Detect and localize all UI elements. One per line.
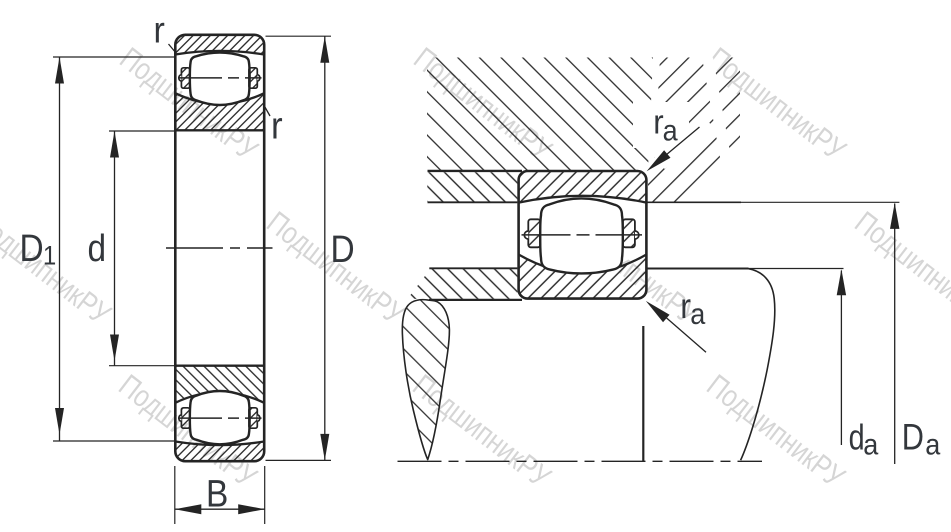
svg-text:a: a (925, 428, 940, 462)
svg-text:D: D (902, 417, 924, 458)
svg-text:a: a (690, 298, 705, 332)
svg-text:D: D (20, 227, 44, 269)
svg-text:r: r (154, 9, 165, 51)
svg-text:d: d (849, 416, 865, 457)
svg-text:B: B (206, 473, 228, 515)
svg-text:a: a (663, 114, 678, 148)
svg-text:1: 1 (43, 241, 56, 271)
svg-text:D: D (331, 228, 355, 270)
svg-text:r: r (271, 104, 283, 147)
svg-text:d: d (88, 227, 107, 269)
svg-text:a: a (863, 428, 878, 462)
